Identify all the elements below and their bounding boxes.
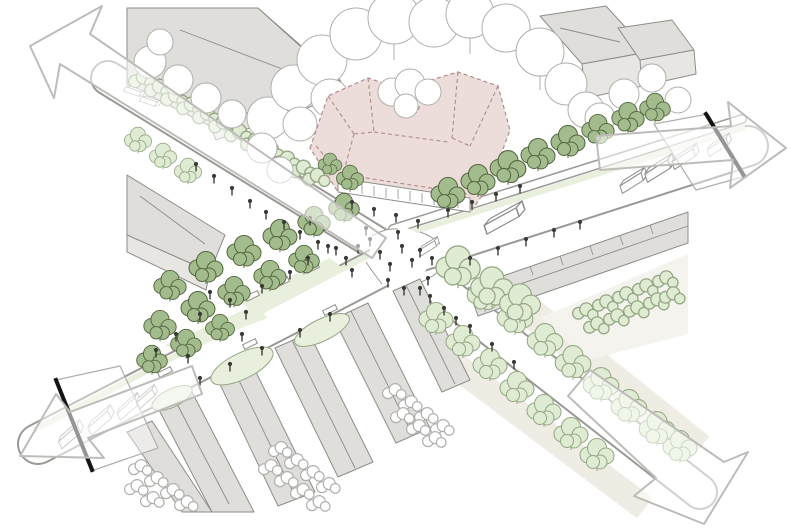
urban-design-illustration — [0, 0, 800, 530]
illustration-canvas — [0, 0, 800, 530]
